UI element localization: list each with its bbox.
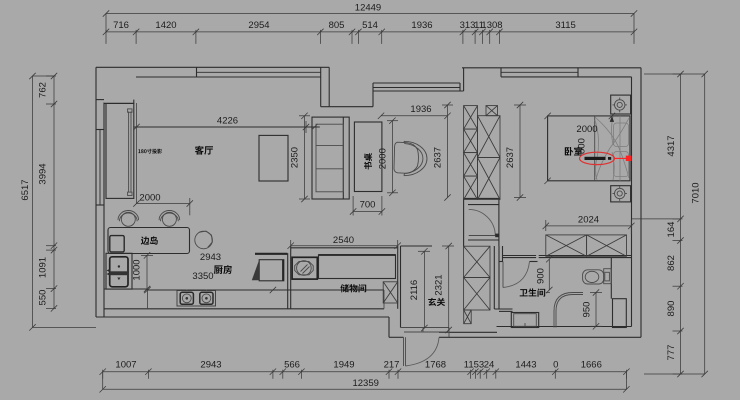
svg-text:6517: 6517 — [20, 179, 31, 200]
svg-text:800: 800 — [577, 138, 588, 154]
svg-text:2116: 2116 — [409, 280, 420, 300]
svg-text:3115: 3115 — [555, 20, 575, 31]
svg-text:2637: 2637 — [505, 147, 516, 168]
svg-text:2943: 2943 — [200, 252, 221, 263]
svg-text:566: 566 — [284, 360, 300, 371]
svg-text:2000: 2000 — [378, 148, 389, 169]
svg-text:716: 716 — [113, 20, 129, 31]
svg-text:4317: 4317 — [666, 135, 677, 156]
svg-text:1949: 1949 — [333, 360, 354, 371]
svg-text:313: 313 — [460, 20, 476, 31]
svg-text:1007: 1007 — [115, 360, 136, 371]
svg-text:2000: 2000 — [576, 124, 597, 135]
svg-text:2350: 2350 — [290, 147, 301, 168]
svg-text:164: 164 — [666, 222, 677, 238]
svg-text:2540: 2540 — [333, 235, 354, 246]
svg-text:217: 217 — [384, 360, 400, 371]
svg-text:1420: 1420 — [155, 20, 176, 31]
svg-text:514: 514 — [362, 20, 378, 31]
svg-text:24: 24 — [484, 360, 495, 371]
svg-text:12449: 12449 — [355, 3, 381, 14]
svg-text:12359: 12359 — [352, 378, 378, 389]
svg-text:700: 700 — [360, 200, 376, 211]
svg-text:1000: 1000 — [132, 259, 143, 280]
svg-text:3994: 3994 — [38, 163, 49, 184]
svg-text:1666: 1666 — [581, 360, 602, 371]
svg-text:890: 890 — [666, 301, 677, 317]
svg-text:1153: 1153 — [464, 360, 484, 371]
svg-text:1091: 1091 — [38, 257, 49, 278]
svg-text:7010: 7010 — [691, 182, 702, 203]
svg-text:2000: 2000 — [139, 193, 160, 204]
svg-text:0: 0 — [553, 360, 558, 371]
svg-text:862: 862 — [666, 255, 677, 271]
svg-text:762: 762 — [38, 82, 49, 98]
svg-text:900: 900 — [536, 268, 547, 284]
svg-text:1768: 1768 — [425, 360, 446, 371]
svg-text:2637: 2637 — [433, 147, 444, 168]
svg-text:2954: 2954 — [248, 20, 269, 31]
svg-text:950: 950 — [582, 302, 593, 318]
svg-text:777: 777 — [666, 345, 677, 361]
svg-text:1443: 1443 — [515, 360, 536, 371]
svg-text:2321: 2321 — [434, 274, 445, 295]
svg-text:2024: 2024 — [578, 215, 599, 226]
svg-text:1936: 1936 — [410, 104, 431, 115]
svg-text:3350: 3350 — [192, 271, 213, 282]
svg-text:550: 550 — [38, 290, 49, 306]
svg-text:4226: 4226 — [217, 116, 238, 127]
svg-text:805: 805 — [329, 20, 345, 31]
svg-text:1936: 1936 — [411, 20, 432, 31]
svg-text:1308: 1308 — [481, 20, 502, 31]
svg-text:2943: 2943 — [200, 360, 221, 371]
